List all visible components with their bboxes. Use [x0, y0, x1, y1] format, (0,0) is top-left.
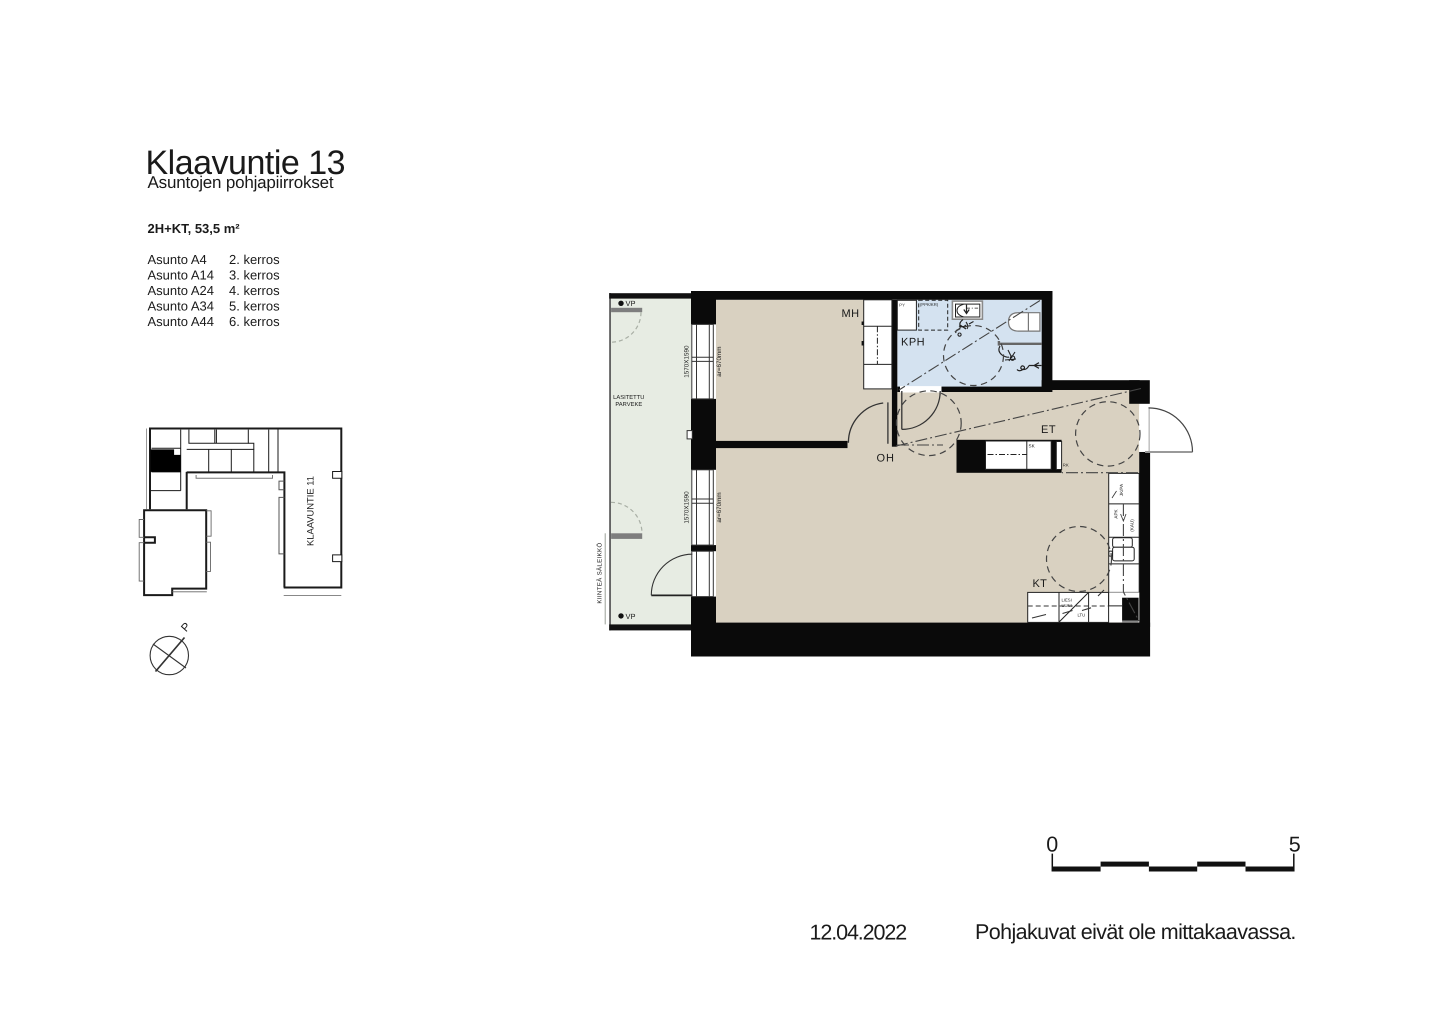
svg-text:Asunto A34: Asunto A34	[148, 298, 215, 313]
svg-text:Asunto A44: Asunto A44	[148, 314, 215, 329]
svg-text:5. kerros: 5. kerros	[229, 298, 280, 313]
svg-text:Asunto A24: Asunto A24	[148, 283, 215, 298]
svg-text:Pohjakuvat eivät ole mittakaav: Pohjakuvat eivät ole mittakaavassa.	[975, 920, 1296, 944]
svg-text:OH: OH	[877, 453, 896, 465]
svg-text:ar=670mm: ar=670mm	[716, 346, 723, 376]
svg-text:6. kerros: 6. kerros	[229, 314, 280, 329]
svg-text:PARVEKE: PARVEKE	[615, 402, 642, 408]
svg-text:2H+KT, 53,5 m²: 2H+KT, 53,5 m²	[148, 221, 241, 236]
svg-text:UUNI: UUNI	[1062, 603, 1072, 608]
svg-text:1570X1590: 1570X1590	[684, 491, 691, 524]
svg-text:MH: MH	[842, 308, 860, 320]
svg-text:APK: APK	[1114, 508, 1119, 518]
svg-text:VP: VP	[626, 299, 636, 308]
svg-text:LASITETTU: LASITETTU	[613, 394, 644, 401]
svg-text:PY: PY	[899, 303, 905, 308]
svg-text:RK: RK	[1063, 463, 1069, 468]
svg-text:2. kerros: 2. kerros	[229, 252, 280, 267]
svg-text:12.04.2022: 12.04.2022	[810, 921, 907, 945]
svg-text:1570X1590: 1570X1590	[684, 345, 691, 378]
svg-text:JK/PA: JK/PA	[1119, 483, 1124, 496]
svg-text:(KAU): (KAU)	[1130, 519, 1135, 532]
svg-text:ET: ET	[1041, 424, 1056, 436]
svg-text:5: 5	[1289, 833, 1301, 857]
svg-text:LTU: LTU	[1078, 613, 1086, 618]
svg-text:LIESI: LIESI	[1062, 598, 1072, 603]
svg-text:Asunto A14: Asunto A14	[148, 267, 215, 282]
svg-text:3. kerros: 3. kerros	[229, 267, 280, 282]
svg-text:VP: VP	[626, 612, 636, 621]
svg-text:KPH: KPH	[901, 337, 925, 349]
svg-text:4. kerros: 4. kerros	[229, 283, 280, 298]
svg-text:KLAAVUNTIE 11: KLAAVUNTIE 11	[304, 476, 315, 546]
svg-text:(PPK/KR): (PPK/KR)	[920, 302, 939, 307]
svg-text:KIINTEÄ SÄLEIKKÖ: KIINTEÄ SÄLEIKKÖ	[596, 542, 604, 603]
svg-text:ar=670mm: ar=670mm	[716, 492, 723, 522]
svg-text:Asunto A4: Asunto A4	[148, 252, 207, 267]
svg-text:SK: SK	[1029, 444, 1036, 449]
svg-text:P: P	[179, 621, 193, 635]
svg-text:Asuntojen pohjapiirrokset: Asuntojen pohjapiirrokset	[148, 173, 334, 192]
svg-text:KT: KT	[1033, 578, 1048, 590]
svg-text:0: 0	[1046, 833, 1058, 857]
